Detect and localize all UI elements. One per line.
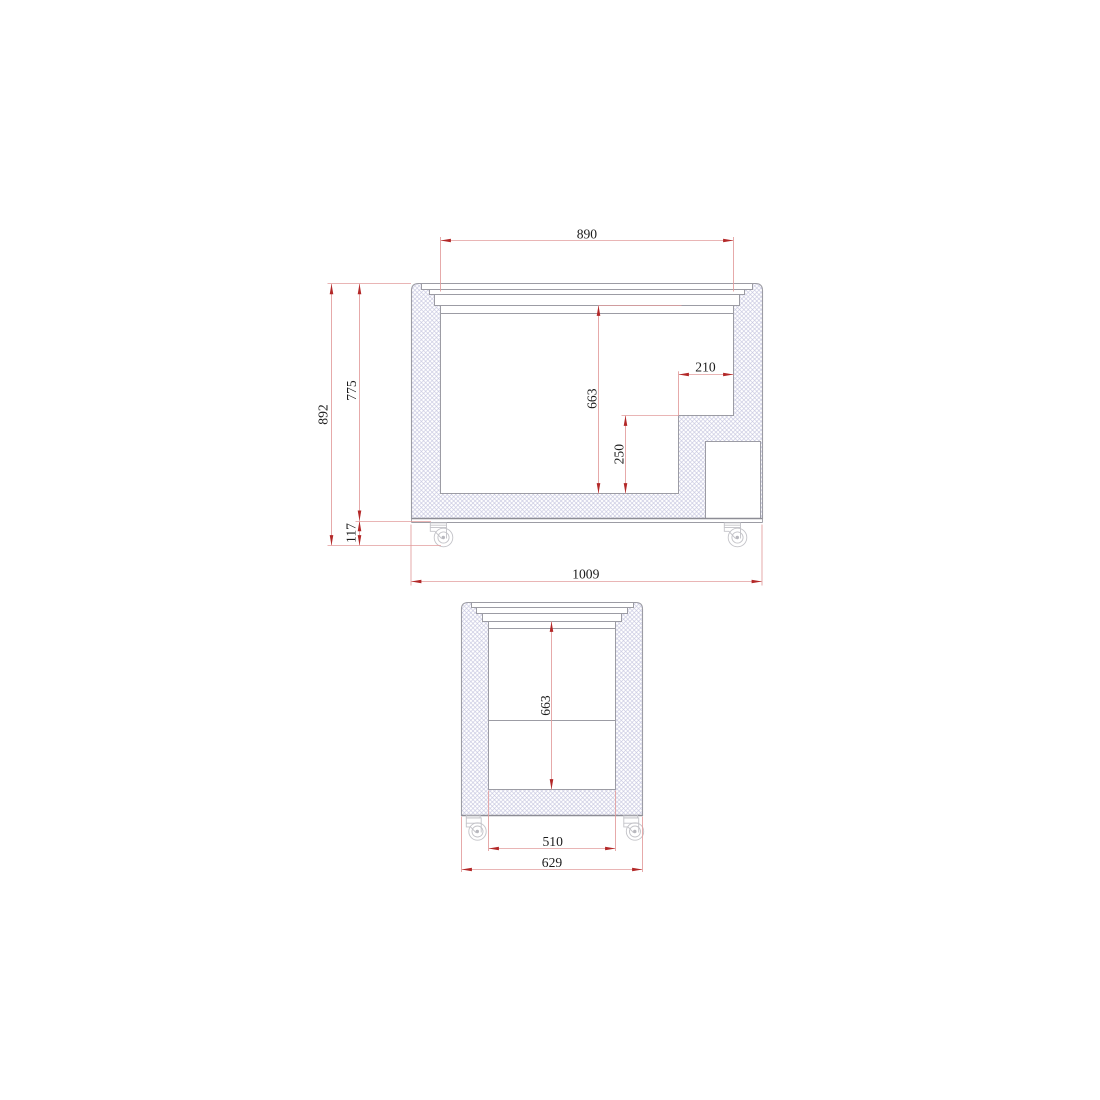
svg-text:663: 663: [585, 388, 600, 409]
svg-text:892: 892: [315, 404, 330, 425]
svg-text:775: 775: [344, 380, 359, 401]
svg-text:890: 890: [577, 226, 598, 241]
svg-text:510: 510: [543, 834, 564, 849]
svg-text:663: 663: [538, 695, 553, 716]
svg-text:210: 210: [695, 360, 716, 375]
svg-text:117: 117: [344, 523, 359, 543]
svg-text:1009: 1009: [572, 567, 599, 582]
svg-text:629: 629: [542, 855, 563, 870]
svg-text:250: 250: [611, 444, 626, 465]
